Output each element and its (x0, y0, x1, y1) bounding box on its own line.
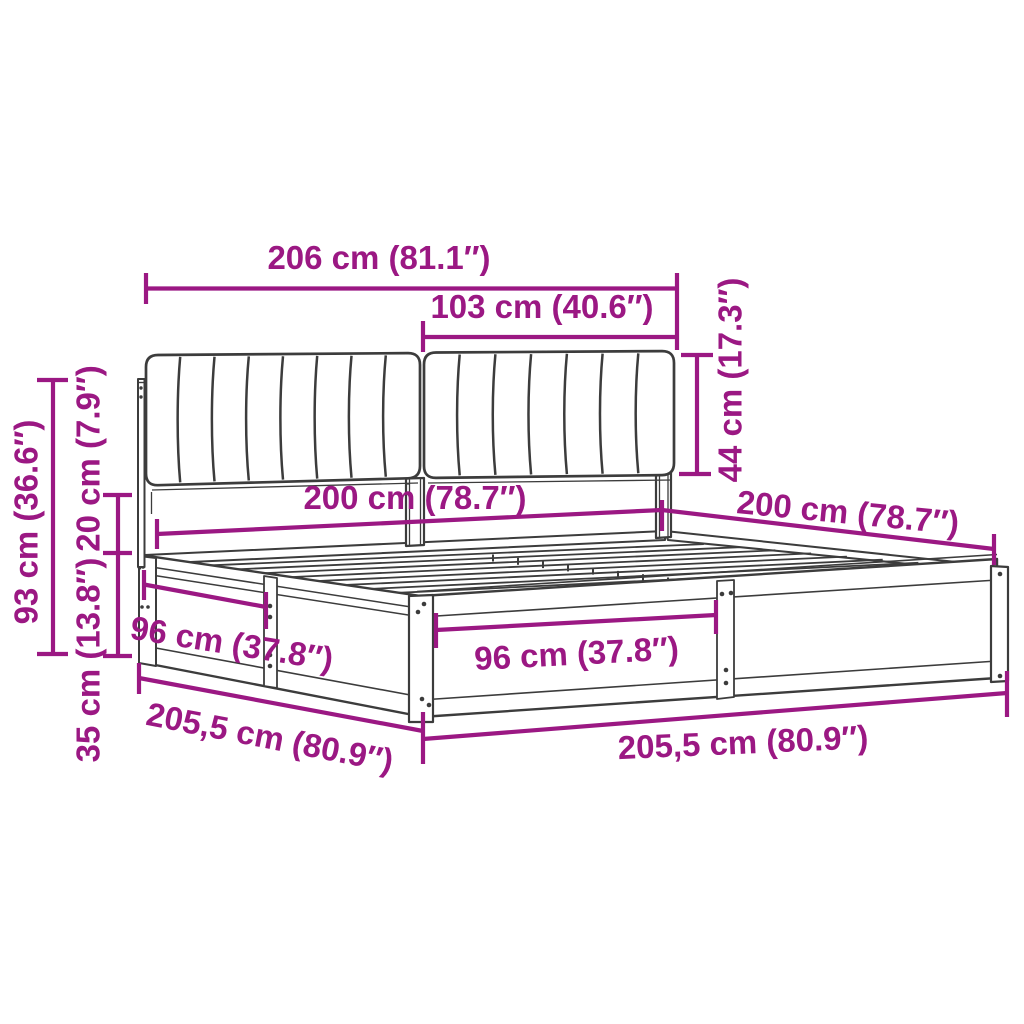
svg-text:93 cm (36.6″): 93 cm (36.6″) (8, 420, 45, 625)
svg-text:206 cm (81.1″): 206 cm (81.1″) (267, 239, 490, 276)
svg-text:20 cm (7.9″): 20 cm (7.9″) (70, 365, 107, 551)
svg-text:103 cm (40.6″): 103 cm (40.6″) (430, 288, 653, 325)
svg-text:200 cm (78.7″): 200 cm (78.7″) (303, 479, 526, 516)
svg-text:44 cm (17.3″): 44 cm (17.3″) (712, 278, 749, 483)
svg-text:35 cm (13.8″): 35 cm (13.8″) (70, 558, 107, 763)
